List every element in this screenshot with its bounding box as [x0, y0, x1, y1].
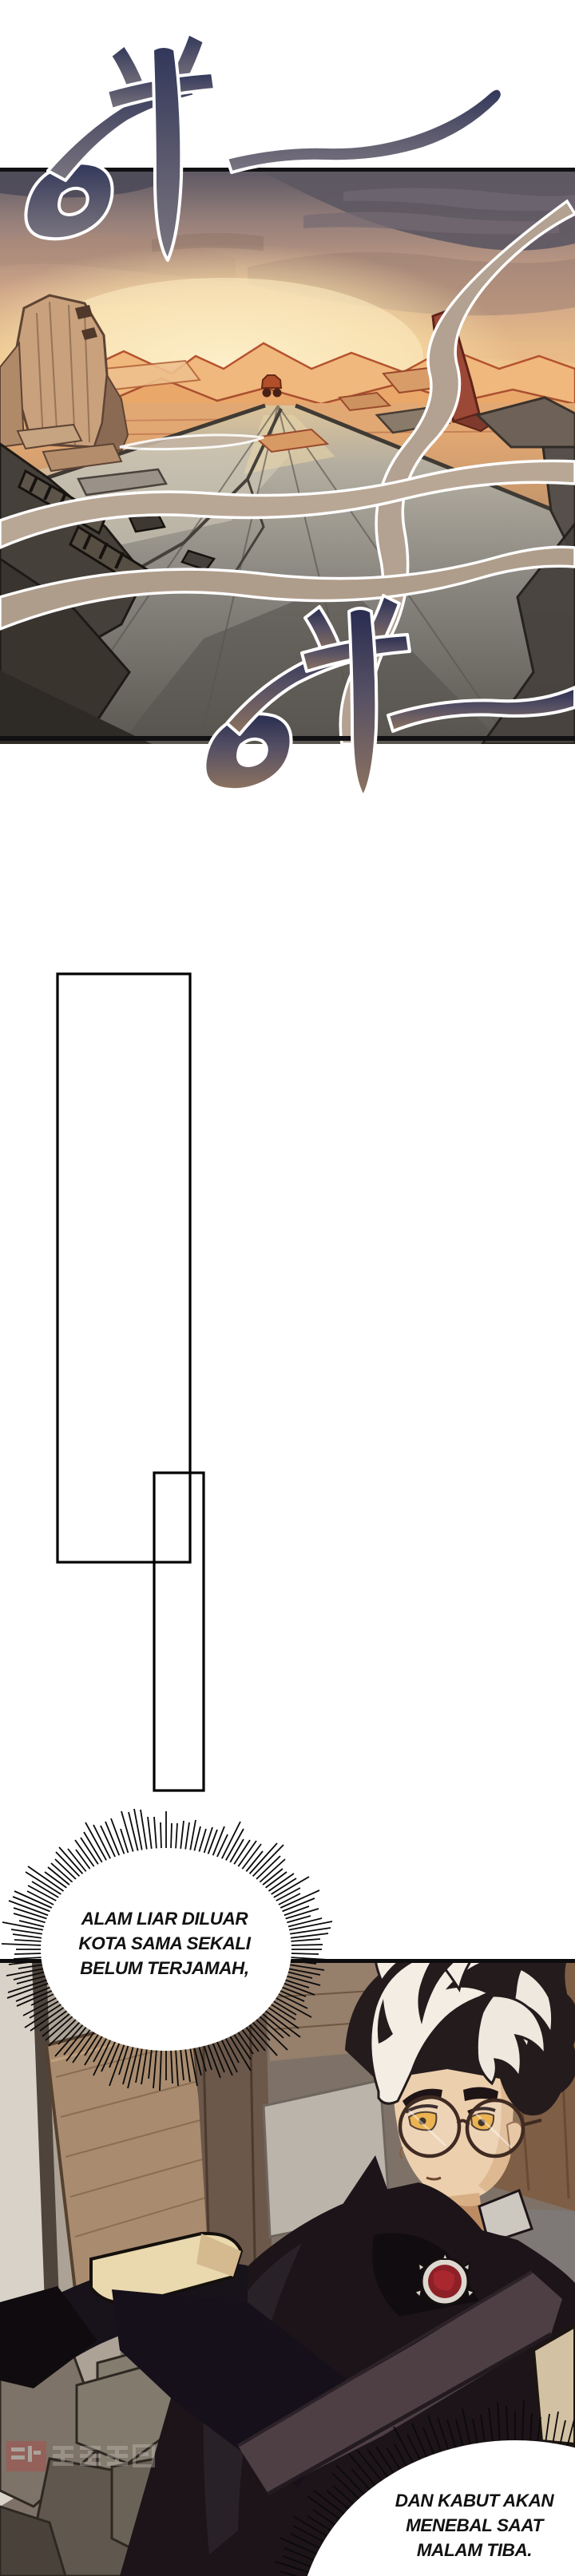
svg-text:BELUM TERJAMAH,: BELUM TERJAMAH,	[80, 1958, 249, 1978]
svg-text:KOTA SAMA SEKALI: KOTA SAMA SEKALI	[78, 1933, 251, 1953]
svg-text:MALAM TIBA.: MALAM TIBA.	[417, 2540, 532, 2560]
svg-text:ALAM LIAR DILUAR: ALAM LIAR DILUAR	[81, 1909, 249, 1929]
svg-text:DAN KABUT AKAN: DAN KABUT AKAN	[395, 2491, 555, 2511]
svg-text:MENEBAL SAAT: MENEBAL SAAT	[406, 2515, 545, 2535]
